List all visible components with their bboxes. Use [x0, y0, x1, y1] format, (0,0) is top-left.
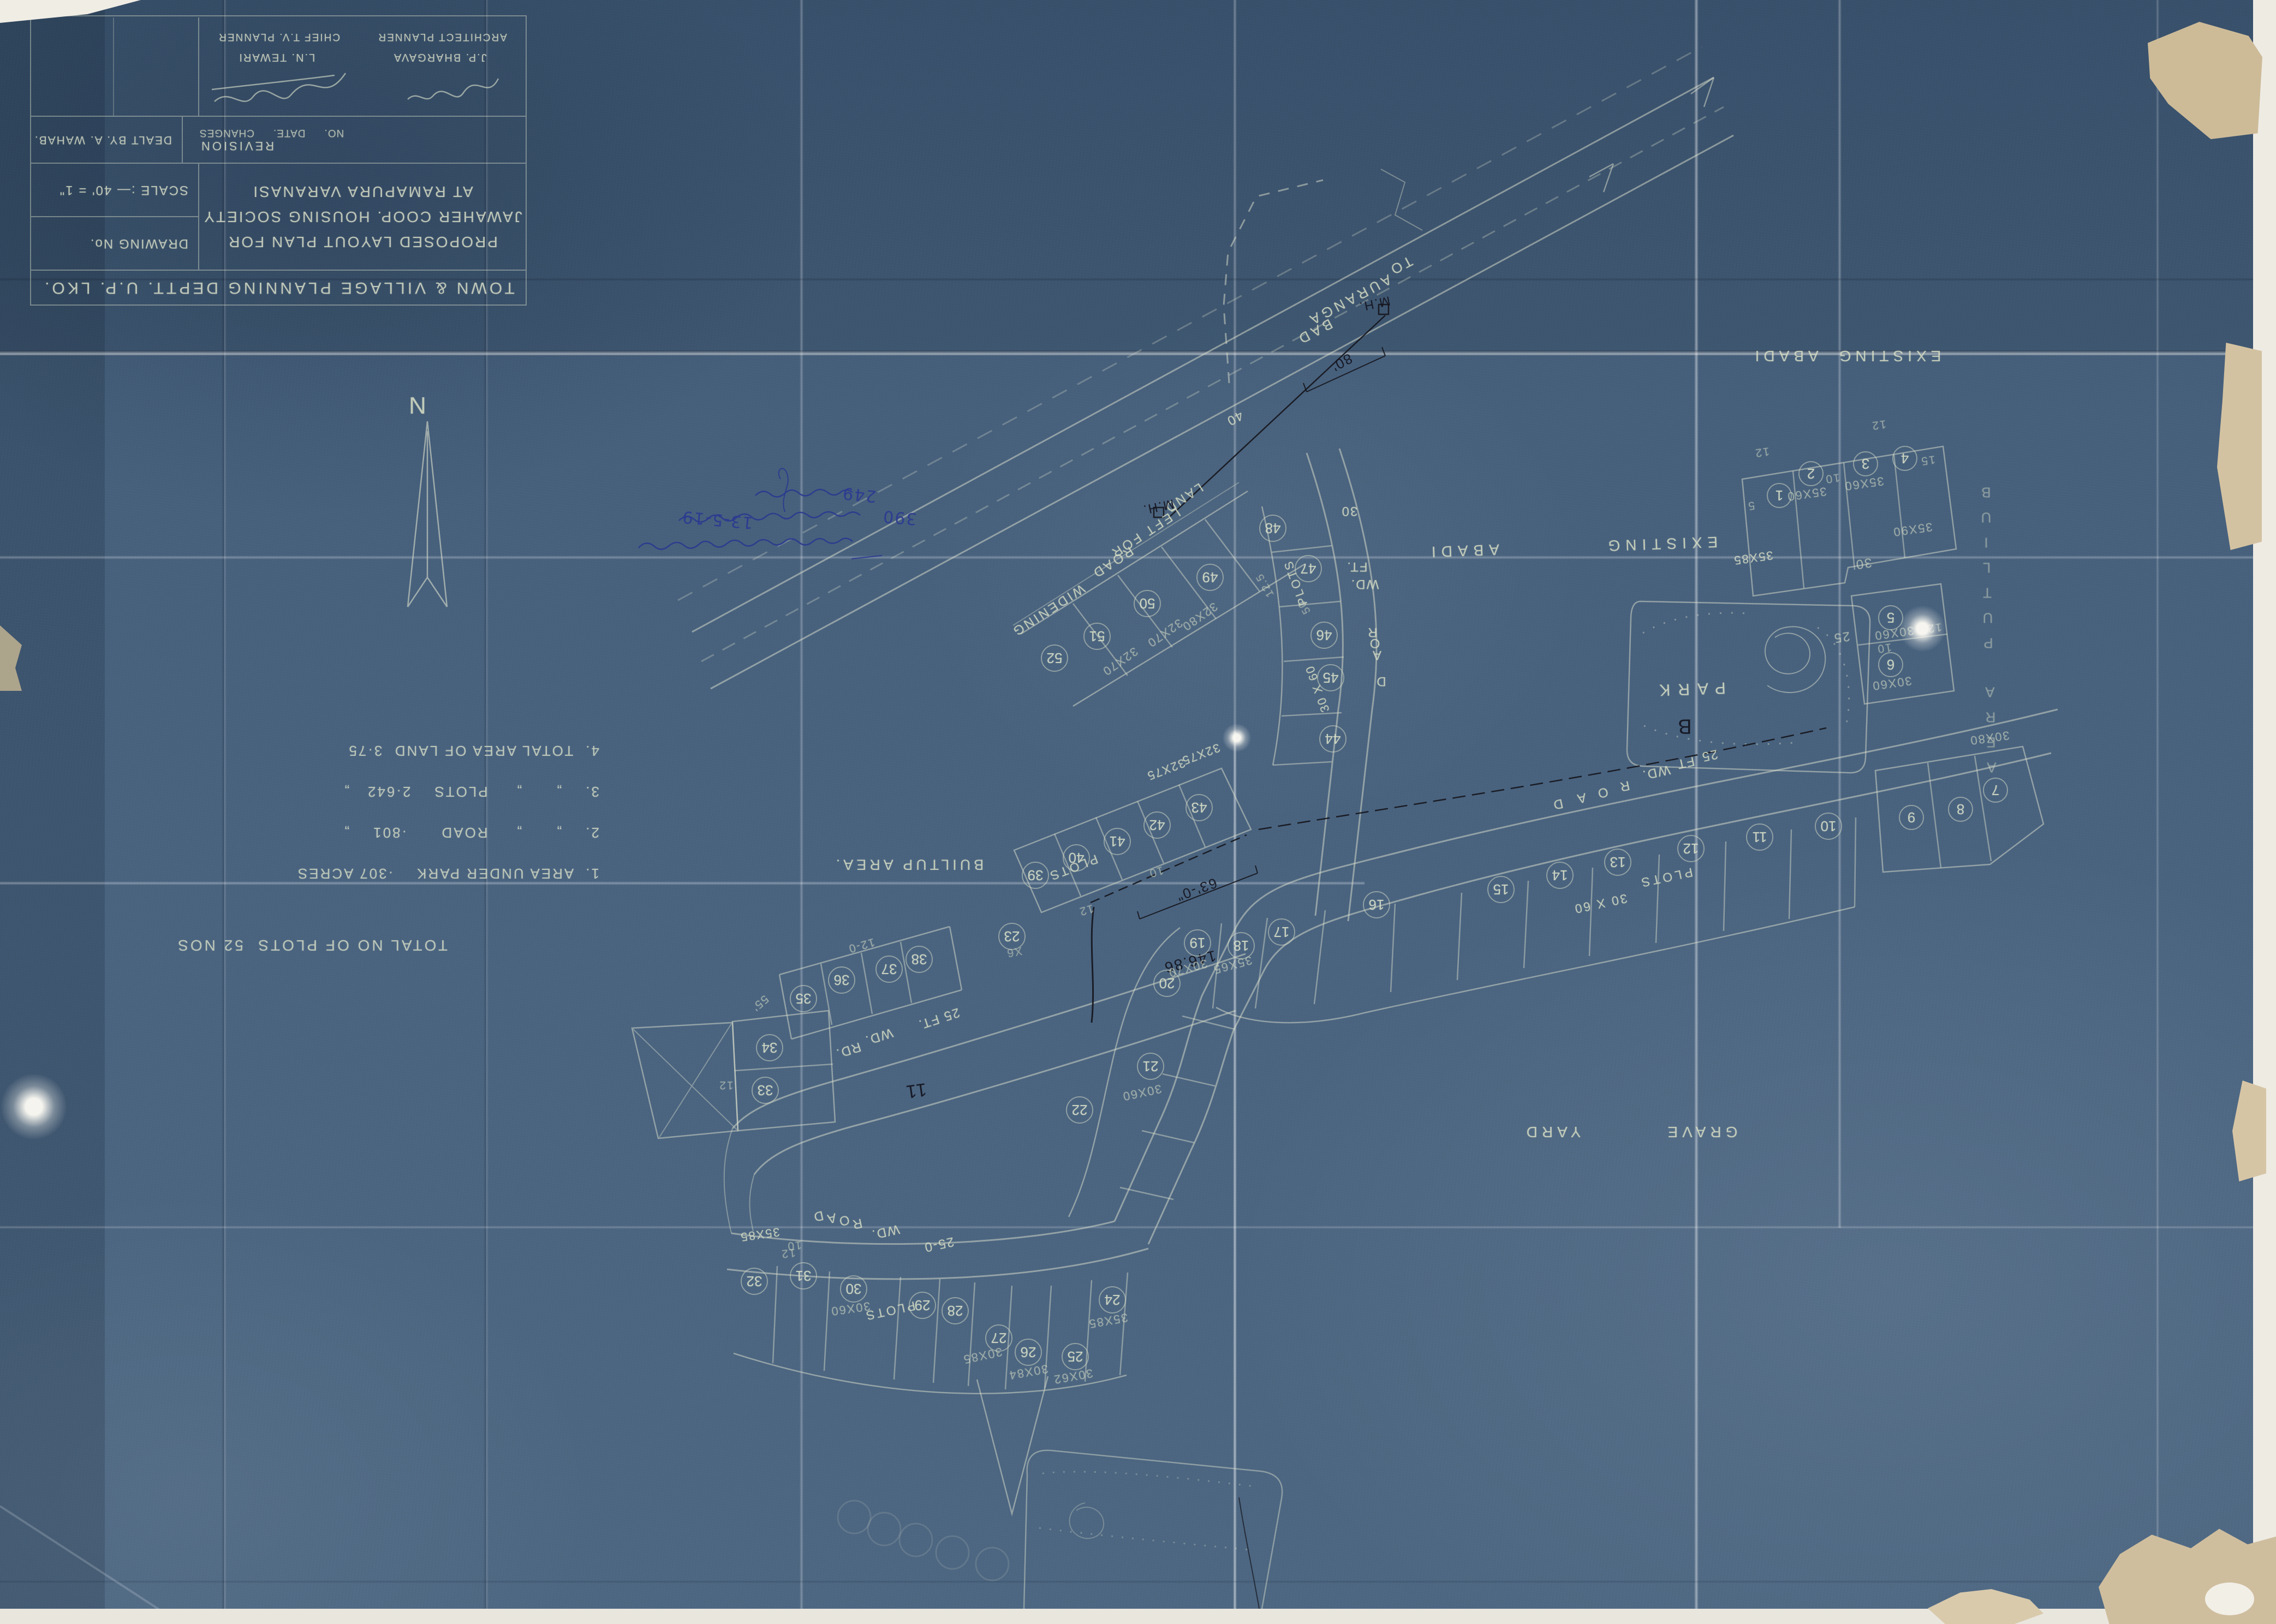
plot-number: 41: [1104, 828, 1131, 855]
drawing-number-cell: DRAWING No.: [31, 217, 198, 270]
revision-col-date: DATE.: [273, 127, 306, 139]
signatures-svg: [204, 62, 509, 111]
road-name-label: A: [1372, 647, 1381, 662]
road-name-label: 25 FT.: [916, 1005, 962, 1032]
signature-area: J.P. BHARGAVA L.N. TEWARI ARCHITECT PLAN…: [31, 17, 526, 116]
builtup-vertical-letter: A: [1986, 759, 1996, 776]
north-label: N: [408, 391, 426, 419]
scan-flare: [1899, 606, 1945, 652]
handwritten-note-date: 13-5-19: [681, 507, 754, 532]
ink-measurement-label: 63'-0": [1173, 874, 1219, 905]
handwritten-note-number: 390: [881, 506, 917, 528]
architect-name: J.P. BHARGAVA: [393, 51, 487, 63]
area-table-row: 3. „ „ PLOTS 2·642 „: [223, 783, 599, 800]
plot-number: 16: [1363, 891, 1390, 918]
plot-number: 46: [1310, 622, 1338, 649]
builtup-vertical-letter: P: [1982, 635, 1993, 652]
plot-number: 14: [1546, 862, 1574, 889]
plot-number: 4: [1892, 446, 1917, 471]
road-name-label: D: [1551, 795, 1565, 812]
road-destination-label: TO: [1386, 253, 1416, 279]
road-name-label: WD.: [1640, 762, 1671, 783]
road-name-label: R: [1618, 777, 1631, 794]
builtup-vertical-letter: T: [1982, 584, 1992, 601]
title-block-frame: TOWN & VILLAGE PLANNING DEPTT. U.P. LKO.…: [30, 15, 527, 306]
builtup-vertical-letter: B: [1980, 484, 1991, 501]
road-name-label: RD.: [833, 1038, 863, 1061]
handwritten-note-number: 249: [841, 483, 878, 505]
ink-number-annotation: 11: [904, 1078, 928, 1102]
plot-number: 7: [1983, 778, 2008, 803]
revision-table: REVISION NO. DATE. CHANGES: [182, 117, 526, 163]
plots-dim-caption: 30 X 60: [1572, 891, 1629, 916]
plot-number: 34: [756, 1034, 783, 1061]
title-line-3: AT RAMAPURA VARANASI: [252, 183, 473, 200]
plot-number: 37: [875, 956, 903, 983]
road-name-label: WD.: [1350, 576, 1379, 592]
plot-number: 3: [1853, 451, 1878, 476]
builtup-vertical-letter: I: [1983, 534, 1988, 551]
title-line-2: JAWAHER COOP. HOUSING SOCIETY: [202, 208, 522, 225]
road-widening-label: WIDENING: [1009, 581, 1088, 640]
plot-number: 43: [1185, 794, 1213, 821]
dimension-label: 12.5: [1253, 571, 1277, 599]
road-name-label: A: [825, 1209, 837, 1226]
revision-col-no: NO.: [324, 127, 344, 139]
area-table-row: 2. „ „ ROAD ·801 „: [223, 824, 599, 841]
drawing-number-label: DRAWING No.: [90, 236, 188, 251]
dimension-label: 12: [780, 1246, 796, 1261]
total-plots-label: TOTAL NO OF PLOTS 52 NOS: [229, 936, 448, 954]
builtup-vertical-letter: L: [1982, 559, 1991, 576]
builtup-area-label: BUILTUP AREA.: [833, 856, 984, 873]
dimension-label: 12: [1870, 417, 1887, 432]
road-name-label: O: [1595, 784, 1610, 801]
dimension-label: 12-0: [847, 935, 877, 956]
plot-number: 23: [998, 923, 1026, 950]
builtup-vertical-letter: R: [1985, 709, 1996, 726]
road-name-label: 25-0: [922, 1233, 956, 1255]
plot-dim-label: 35X60: [1843, 474, 1885, 493]
road-name-label: WD.: [869, 1221, 901, 1242]
park-label: PARK: [1652, 678, 1726, 700]
plot-number: 39: [1022, 862, 1049, 889]
revision-label: REVISION: [199, 139, 274, 153]
scan-flare: [1, 1074, 67, 1139]
plot-number: 50: [1134, 590, 1161, 617]
dealt-by-text: DEALT BY. A. WAHAB.: [34, 133, 172, 146]
plot-number: 40: [1063, 844, 1090, 871]
plot-dim-label: 30X60: [1121, 1082, 1163, 1104]
plot-number: 29: [909, 1292, 936, 1319]
area-table: 1. AREA UNDER PARK ·307 ACRES 2. „ „ ROA…: [223, 742, 599, 882]
plots-dim-caption: 32X75: [1179, 741, 1222, 768]
plot-dim-label: 30X62: [1052, 1366, 1094, 1387]
road-name-label: FT: [1675, 753, 1696, 772]
plot-number: 17: [1268, 918, 1295, 946]
road-name-label: FT.: [1346, 559, 1367, 574]
title-block-divider: [113, 17, 114, 116]
area-table-row: 4. TOTAL AREA OF LAND 3·75: [223, 742, 599, 759]
plots-dim-caption: 32X75: [1145, 756, 1187, 784]
plot-number: 32: [741, 1268, 768, 1295]
plot-number: 12: [1677, 835, 1705, 862]
plot-number: 49: [1196, 564, 1224, 591]
plot-number: 9: [1899, 805, 1924, 830]
plot-number: 24: [1099, 1286, 1126, 1313]
plots-dim-caption: PLOTS: [1637, 864, 1694, 890]
plot-dim-label: 35X85: [1087, 1310, 1129, 1331]
plot-number: 48: [1259, 515, 1286, 542]
plot-dim-label: 32X80: [1179, 599, 1220, 634]
road-name-label: A: [1575, 789, 1587, 806]
plot-number: 44: [1319, 725, 1346, 753]
scan-flare: [1223, 724, 1251, 752]
plot-number: 20: [1153, 970, 1181, 997]
torn-edge: [2205, 1583, 2254, 1615]
scale-cell: SCALE :— 40' = 1": [31, 164, 198, 217]
road-name-label: D: [1375, 673, 1386, 689]
plot-number: 52: [1041, 644, 1068, 672]
drawing-title: PROPOSED LAYOUT PLAN FOR JAWAHER COOP. H…: [198, 164, 526, 270]
title-block: TOWN & VILLAGE PLANNING DEPTT. U.P. LKO.…: [30, 15, 527, 306]
title-line-1: PROPOSED LAYOUT PLAN FOR: [227, 233, 498, 250]
existing-abadi-label-mid: EXISTING ABADI: [1426, 533, 1718, 561]
plot-number: 30: [840, 1275, 867, 1303]
plot-dim-label: 30X60: [1871, 673, 1913, 693]
dimension-label: 12: [718, 1078, 733, 1091]
road-width-label: 40: [1224, 407, 1246, 428]
plot-dim-label: 30X84: [1007, 1362, 1049, 1382]
road-name-label: 25: [1700, 746, 1719, 765]
dimension-label: 10: [1147, 863, 1165, 880]
plot-dim-label: 35X85: [1732, 548, 1774, 568]
plot-number: 6: [1878, 652, 1903, 677]
signature-squiggle: [408, 79, 498, 99]
scale-value: 40' = 1": [59, 182, 112, 198]
plot-dim-label: 32X70: [1099, 644, 1140, 679]
dimension-label: 55': [749, 992, 771, 1014]
signature-squiggle: [212, 73, 345, 101]
road-width-label: 25: [1832, 628, 1851, 646]
plot-number: 33: [752, 1077, 779, 1104]
planner-title: CHIEF T.V. PLANNER: [218, 31, 340, 43]
road-width-label: 30: [1854, 554, 1873, 572]
builtup-vertical-letter: U: [1980, 509, 1992, 526]
plot-number: 22: [1066, 1096, 1093, 1124]
scale-label: SCALE :—: [116, 182, 188, 198]
blueprint-scan: EXISTING ABADIEXISTING ABADIBUILTUP AREA…: [0, 0, 2276, 1624]
architect-title: ARCHITECT PLANNER: [377, 31, 507, 43]
dealt-by-cell: DEALT BY. A. WAHAB.: [31, 117, 182, 163]
plot-dim-label: 30X80: [1969, 728, 2011, 748]
plot-number: 38: [905, 946, 933, 973]
plot-number: 45: [1317, 664, 1344, 691]
area-table-row: 1. AREA UNDER PARK ·307 ACRES: [223, 865, 599, 882]
plot-dim-label: 35X85: [739, 1225, 781, 1244]
plot-number: 25: [1062, 1343, 1089, 1370]
existing-abadi-label-top: EXISTING ABADI: [1751, 347, 1941, 365]
dimension-label: 10: [1824, 470, 1840, 486]
plot-number: 42: [1143, 811, 1171, 839]
road-name-label: WD.: [863, 1025, 895, 1048]
dimension-label: 12: [1077, 901, 1095, 918]
plot-number: 13: [1604, 849, 1631, 876]
plot-number: 28: [942, 1297, 969, 1324]
plot-dim-label: 30X85: [961, 1345, 1003, 1367]
builtup-vertical-letter: U: [1982, 610, 1993, 626]
plot-number: 31: [790, 1262, 817, 1289]
plot-dim-label: 35X60: [1786, 484, 1828, 504]
road-name-label: D: [812, 1207, 825, 1224]
ink-letter-annotation: B: [1677, 714, 1691, 738]
plot-number: 2: [1798, 461, 1824, 486]
plot-number: 19: [1184, 929, 1211, 957]
department-title-text: TOWN & VILLAGE PLANNING DEPTT. U.P. LKO.: [42, 278, 515, 297]
road-name-label: R: [850, 1215, 864, 1232]
plot-number: 51: [1083, 623, 1111, 650]
dimension-label: 5: [1747, 498, 1756, 512]
plot-number: 8: [1948, 797, 1973, 822]
road-name-label: O: [837, 1211, 851, 1229]
plot-dim-label: 35X90: [1892, 520, 1934, 539]
plot-number: 47: [1295, 555, 1322, 582]
plot-dim-label: 32X70: [1144, 616, 1185, 650]
scanner-margin-right: [2253, 0, 2276, 1624]
department-title: TOWN & VILLAGE PLANNING DEPTT. U.P. LKO.: [31, 270, 526, 304]
plot-number: 35: [790, 985, 817, 1012]
plot-number: 10: [1815, 813, 1842, 840]
plot-number: 36: [828, 966, 855, 994]
dimension-label: 15: [1920, 452, 1936, 468]
plot-number: 21: [1137, 1053, 1164, 1080]
plot-number: 15: [1487, 876, 1515, 903]
plot-number: 26: [1015, 1339, 1042, 1366]
planner-name: L.N. TEWARI: [238, 51, 315, 63]
road-name-label: 30: [1341, 503, 1358, 518]
plot-number: 11: [1746, 823, 1773, 851]
revision-col-changes: CHANGES: [199, 127, 254, 139]
grave-yard-label: GRAVE YARD: [1522, 1123, 1738, 1141]
builtup-vertical-letter: A: [1984, 684, 1994, 701]
dimension-label: 12: [1754, 444, 1770, 459]
ink-measurement-label: 80': [1328, 350, 1355, 375]
